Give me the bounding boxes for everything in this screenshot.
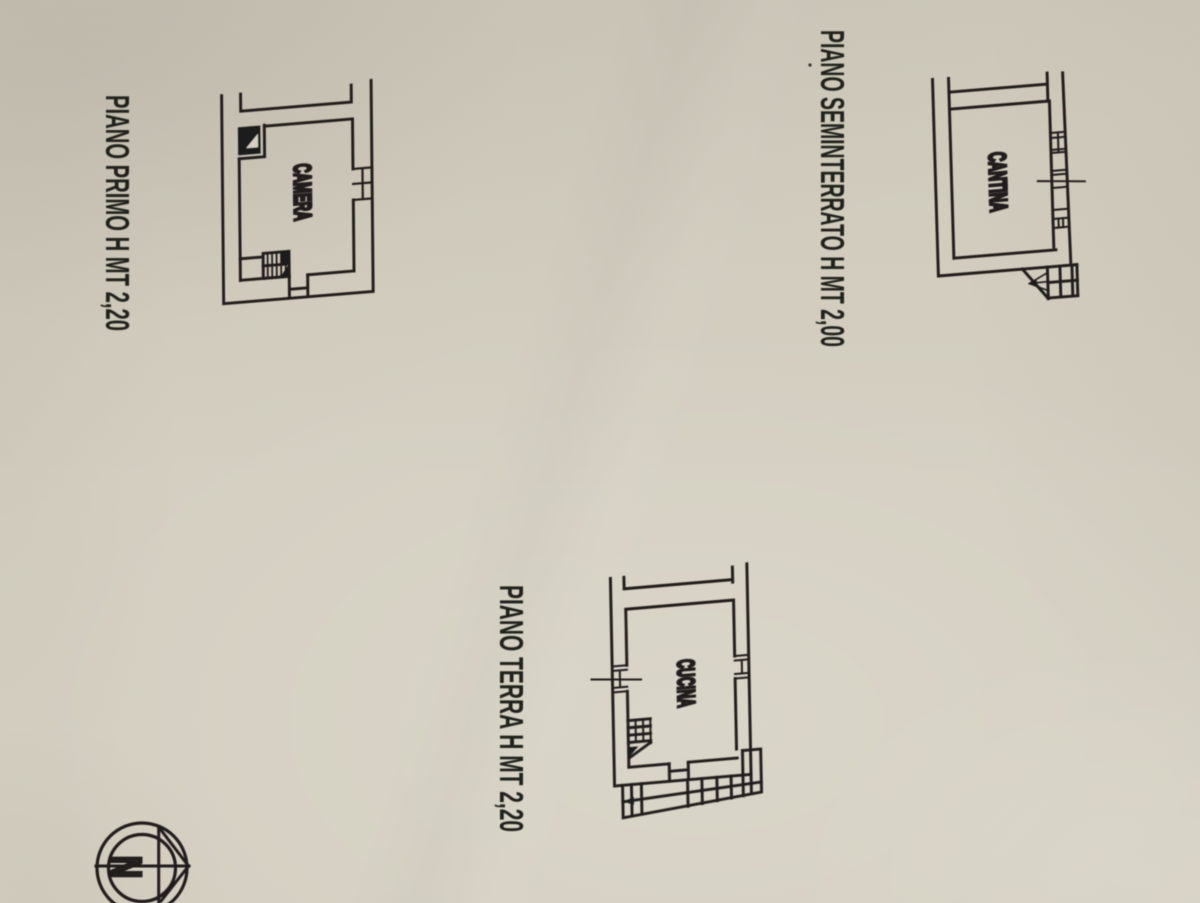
svg-text:CANTINA: CANTINA (983, 151, 1012, 213)
svg-text:N: N (102, 856, 150, 879)
svg-text:CAMERA: CAMERA (288, 163, 315, 222)
svg-text:CUCINA: CUCINA (671, 658, 699, 708)
svg-text:PIANO PRIMO H MT 2,20: PIANO PRIMO H MT 2,20 (99, 95, 136, 331)
svg-text:PIANO SEMINTERRATO H MT 2,00: PIANO SEMINTERRATO H MT 2,00 (814, 30, 851, 347)
svg-text:PIANO TERRA H MT 2,20: PIANO TERRA H MT 2,20 (493, 585, 530, 832)
